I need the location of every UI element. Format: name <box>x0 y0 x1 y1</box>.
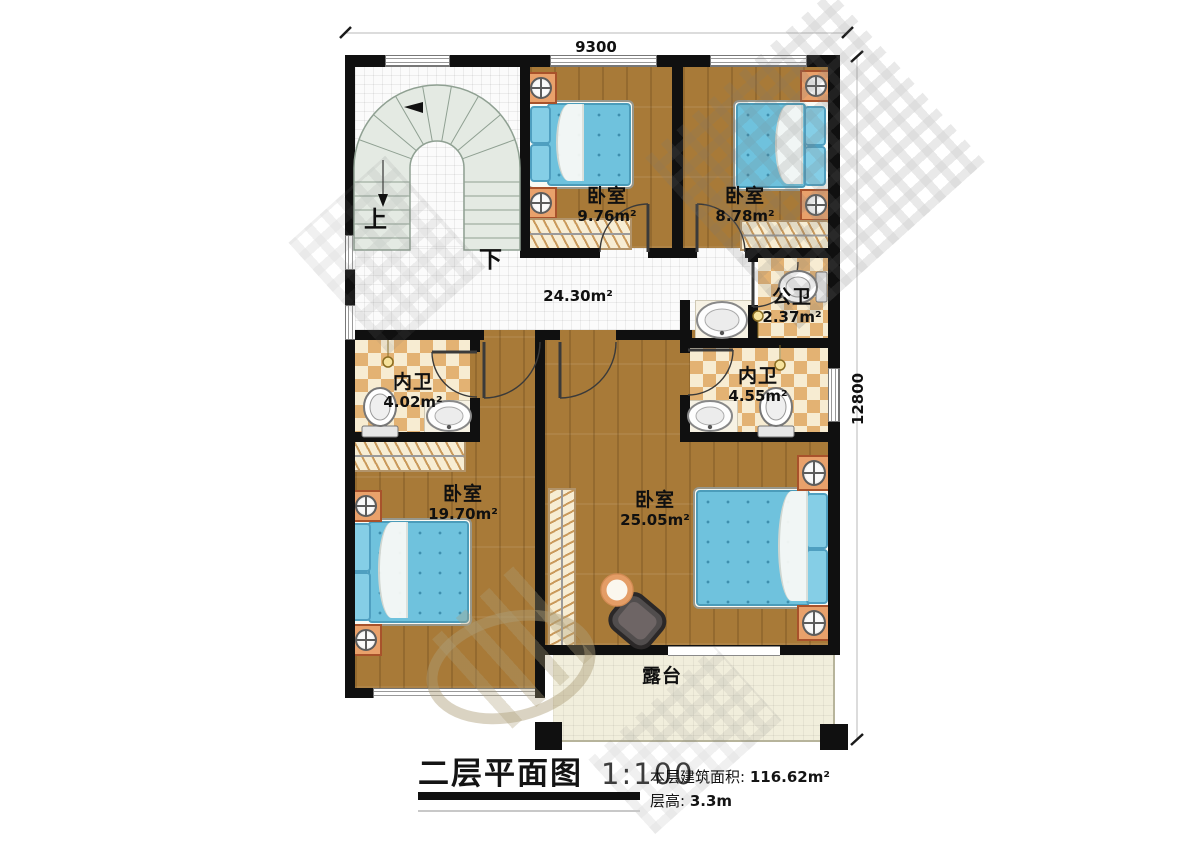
lamp-icon <box>530 77 552 99</box>
floor-area-label: 本层建筑面积: <box>650 768 745 786</box>
window <box>550 55 657 67</box>
wall <box>748 252 758 262</box>
wall <box>470 340 480 352</box>
terrace-floor <box>553 655 835 742</box>
window <box>345 305 355 340</box>
wall <box>680 300 690 338</box>
stair-down-label: 下 <box>479 240 502 274</box>
title-underline-bar <box>418 792 640 800</box>
wall <box>672 66 683 248</box>
bed-pillow <box>530 144 551 182</box>
lamp-icon <box>802 460 826 486</box>
lamp-icon <box>805 194 827 216</box>
dimension-top: 9300 <box>546 38 646 56</box>
wall <box>680 348 690 353</box>
hall-sink-mat <box>695 300 752 340</box>
nightstand <box>797 455 831 491</box>
lamp-icon <box>355 629 377 651</box>
title-underline-thin <box>418 810 640 812</box>
corridor-floor <box>355 248 750 338</box>
lamp-icon <box>802 610 826 636</box>
bed-pillow <box>804 106 826 146</box>
floor-height-line: 层高: 3.3m <box>650 790 732 811</box>
wall <box>345 432 480 442</box>
lamp-icon <box>805 75 827 97</box>
floor-height-value: 3.3m <box>690 792 732 810</box>
wall <box>535 330 545 698</box>
bed-pillow <box>806 493 828 549</box>
wall <box>680 432 840 442</box>
wall <box>680 338 840 348</box>
lamp-icon <box>355 495 377 517</box>
wardrobe <box>740 220 832 251</box>
wall <box>520 66 530 248</box>
wall <box>520 248 600 258</box>
wardrobe <box>527 218 632 250</box>
bed-blanket <box>778 491 808 601</box>
wardrobe <box>548 488 576 654</box>
stair-up-label: 上 <box>364 200 387 234</box>
wall <box>828 55 840 655</box>
bed-blanket <box>378 522 408 618</box>
ensuite-left-sink-mat <box>424 400 476 434</box>
wall <box>748 305 758 338</box>
floor-plan-canvas: 卧室 9.76m² 卧室 8.78m² 24.30m² 公卫 2.37m² 内卫… <box>0 0 1200 848</box>
terrace-column <box>820 724 848 750</box>
bed-pillow <box>530 106 551 144</box>
window <box>345 235 355 270</box>
wall <box>470 398 480 442</box>
bed-blanket <box>775 105 803 184</box>
terrace-wall-stub <box>535 722 562 750</box>
wall <box>648 248 697 258</box>
ensuite-right-sink-mat <box>684 400 738 434</box>
wall <box>745 248 840 258</box>
plan-title: 二层平面图 <box>418 748 583 793</box>
window <box>710 55 807 67</box>
wall <box>680 395 690 442</box>
wardrobe <box>348 440 466 472</box>
window <box>385 55 450 67</box>
lamp-icon <box>530 192 552 214</box>
bed-pillow <box>804 146 826 186</box>
wall <box>345 330 484 340</box>
wall <box>345 55 355 698</box>
floor-area-line: 本层建筑面积: 116.62m² <box>650 766 830 787</box>
floor-height-label: 层高: <box>650 792 685 810</box>
nightstand <box>797 605 831 641</box>
sliding-door <box>668 646 780 656</box>
public-bath-floor <box>758 258 828 338</box>
window <box>828 368 840 422</box>
dimension-right: 12800 <box>849 369 867 429</box>
floor-area-value: 116.62m² <box>750 768 830 786</box>
bed-pillow <box>806 549 828 604</box>
bed-blanket <box>556 104 584 181</box>
window <box>373 688 537 698</box>
